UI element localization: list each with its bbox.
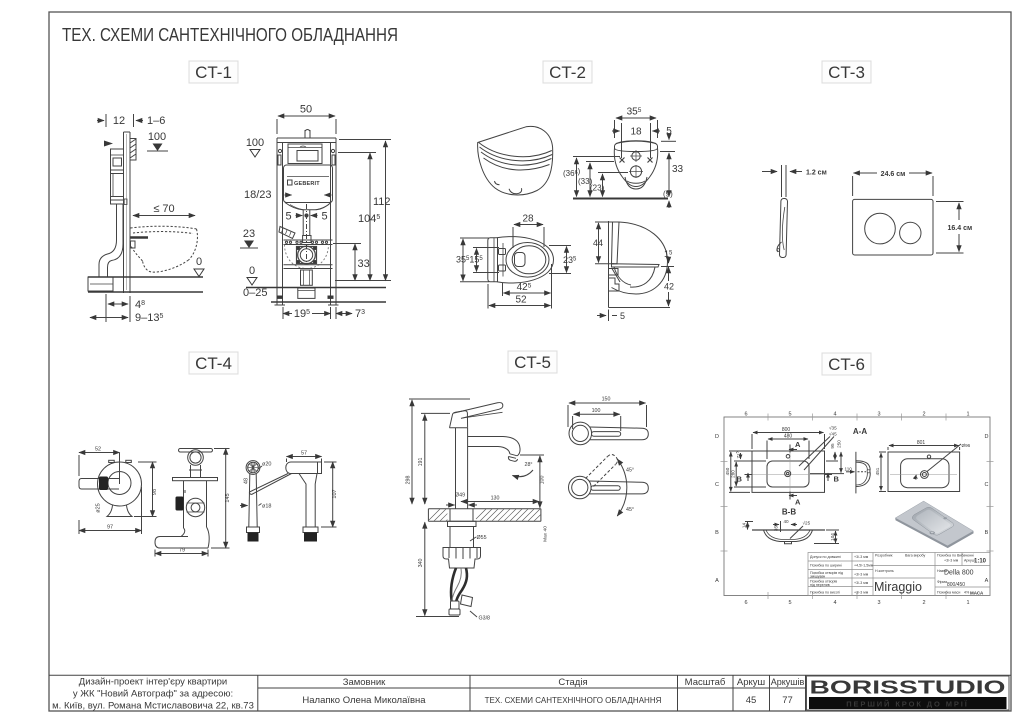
svg-text:(23): (23) — [590, 184, 605, 193]
svg-text:1–6: 1–6 — [147, 115, 165, 127]
svg-text:√35: √35 — [829, 426, 837, 431]
svg-text:Ø96: Ø96 — [962, 443, 971, 448]
svg-text:CT-1: CT-1 — [195, 63, 232, 82]
svg-text:52: 52 — [95, 447, 101, 453]
svg-text:ТЕХ. СХЕМИ САНТЕХНІЧНОГО ОБЛАД: ТЕХ. СХЕМИ САНТЕХНІЧНОГО ОБЛАДНАННЯ — [62, 24, 398, 45]
svg-text:Масштаб: Масштаб — [685, 677, 726, 688]
svg-text:Аркуш: Аркуш — [737, 677, 765, 688]
svg-text:√25: √25 — [803, 521, 811, 526]
svg-text:1:10: 1:10 — [974, 559, 987, 565]
svg-text:4: 4 — [833, 412, 836, 418]
svg-text:CT-3: CT-3 — [828, 63, 865, 82]
svg-text:1: 1 — [966, 412, 969, 418]
svg-text:D: D — [985, 434, 989, 440]
svg-text:CT-2: CT-2 — [549, 63, 586, 82]
svg-text:52: 52 — [515, 295, 527, 306]
svg-text:450: 450 — [725, 467, 730, 475]
svg-text:+3/-3 мм: +3/-3 мм — [854, 581, 869, 585]
svg-text:112: 112 — [373, 196, 391, 208]
svg-text:BORISSTUDIO: BORISSTUDIO — [810, 678, 1006, 698]
svg-text:451: 451 — [875, 467, 880, 475]
svg-text:ø25: ø25 — [96, 503, 102, 512]
svg-text:Аркушів: Аркушів — [771, 677, 805, 687]
svg-text:145: 145 — [225, 493, 231, 502]
svg-text:Похибка по висоті: Похибка по висоті — [810, 591, 840, 595]
svg-text:298: 298 — [406, 476, 412, 485]
svg-text:A-A: A-A — [853, 427, 867, 436]
svg-text:6: 6 — [744, 412, 747, 418]
svg-text:(9): (9) — [663, 190, 673, 199]
svg-text:3: 3 — [877, 600, 880, 606]
svg-text:CT-6: CT-6 — [828, 355, 865, 374]
svg-text:Замовник: Замовник — [343, 677, 386, 688]
svg-text:97: 97 — [107, 525, 113, 531]
svg-text:5: 5 — [788, 412, 791, 418]
svg-text:2: 2 — [922, 600, 925, 606]
svg-text:ТЕХ. СХЕМИ САНТЕХНІЧНОГО ОБЛАД: ТЕХ. СХЕМИ САНТЕХНІЧНОГО ОБЛАДНАННЯ — [485, 696, 662, 705]
svg-text:√45: √45 — [829, 432, 837, 437]
svg-text:9–135: 9–135 — [135, 312, 163, 324]
svg-text:+3/-3 мм: +3/-3 мм — [854, 573, 869, 577]
svg-text:B-B: B-B — [782, 508, 796, 517]
svg-text:57: 57 — [301, 451, 307, 457]
svg-text:800/450: 800/450 — [947, 582, 965, 588]
svg-text:98: 98 — [152, 489, 158, 495]
svg-text:Дизайн-проект інтер'єру кварти: Дизайн-проект інтер'єру квартири — [79, 677, 227, 688]
svg-text:355155: 355155 — [456, 255, 483, 265]
svg-text:ø20: ø20 — [262, 462, 271, 468]
svg-text:100: 100 — [540, 476, 546, 485]
svg-text:≤ 70: ≤ 70 — [153, 203, 174, 215]
svg-text:м. Київ, вул. Романа Мстиславо: м. Київ, вул. Романа Мстиславовича 22, к… — [52, 701, 254, 712]
svg-text:B: B — [715, 530, 719, 536]
svg-text:18/23: 18/23 — [244, 189, 272, 201]
svg-text:23: 23 — [243, 228, 255, 240]
svg-text:6: 6 — [744, 600, 747, 606]
svg-text:пiд перелив: пiд перелив — [810, 583, 830, 587]
svg-text:CT-4: CT-4 — [195, 354, 232, 373]
svg-text:191: 191 — [418, 458, 424, 467]
svg-text:Ø49: Ø49 — [455, 493, 465, 499]
svg-text:Похибка маси: Похибка маси — [937, 591, 960, 595]
svg-text:у ЖК "Новий Автограф" за адрес: у ЖК "Новий Автограф" за адресою: — [73, 689, 233, 700]
svg-text:12: 12 — [113, 115, 125, 127]
svg-text:1: 1 — [966, 600, 969, 606]
svg-text:28°: 28° — [525, 462, 533, 468]
svg-text:МАСА: МАСА — [970, 591, 984, 596]
svg-text:A: A — [795, 440, 801, 449]
svg-text:+3/-3 мм: +3/-3 мм — [944, 559, 959, 563]
svg-text:5: 5 — [666, 126, 672, 137]
svg-text:змішувач: змішувач — [810, 575, 825, 579]
svg-text:Вага виробу: Вага виробу — [905, 554, 926, 558]
svg-text:104: 104 — [830, 533, 835, 541]
svg-text:44: 44 — [593, 238, 603, 248]
svg-text:C: C — [985, 482, 989, 488]
svg-text:Della 800: Della 800 — [944, 570, 974, 577]
svg-text:B: B — [985, 530, 989, 536]
svg-text:+3/-3 мм: +3/-3 мм — [854, 555, 869, 559]
svg-text:D: D — [715, 434, 719, 440]
svg-text:0–25: 0–25 — [243, 287, 267, 299]
svg-text:50: 50 — [300, 104, 312, 116]
svg-text:G3/8: G3/8 — [479, 616, 491, 622]
svg-text:18: 18 — [630, 127, 642, 138]
svg-text:+4,5/-1,5мм: +4,5/-1,5мм — [854, 564, 874, 568]
svg-text:14: 14 — [742, 523, 747, 529]
svg-text:Ø55: Ø55 — [477, 535, 487, 541]
svg-text:A: A — [795, 498, 801, 507]
svg-text:280: 280 — [731, 470, 736, 478]
svg-text:Похибка по Вибаченні: Похибка по Вибаченні — [937, 554, 974, 558]
svg-text:ПЕРШИЙ КРОК ДО МРІЇ: ПЕРШИЙ КРОК ДО МРІЇ — [846, 699, 969, 708]
svg-text:Налапко Олена Миколаївна: Налапко Олена Миколаївна — [302, 695, 426, 706]
svg-text:48: 48 — [244, 478, 250, 484]
svg-text:79: 79 — [179, 548, 185, 554]
svg-text:Допуск по довжині: Допуск по довжині — [810, 555, 841, 559]
svg-text:Miraggio: Miraggio — [874, 579, 922, 594]
svg-text:C: C — [715, 482, 719, 488]
svg-text:35: 35 — [774, 526, 779, 532]
svg-text:28: 28 — [522, 214, 534, 225]
svg-text:33: 33 — [358, 258, 370, 270]
svg-text:107: 107 — [332, 489, 338, 498]
svg-text:0: 0 — [249, 265, 255, 277]
svg-text:100: 100 — [592, 408, 601, 414]
svg-text:Стадія: Стадія — [558, 677, 587, 688]
svg-text:77: 77 — [782, 695, 793, 706]
svg-text:340: 340 — [418, 559, 424, 568]
svg-text:45°: 45° — [626, 507, 634, 513]
svg-text:A: A — [715, 578, 719, 584]
svg-text:95: 95 — [830, 443, 835, 449]
svg-text:150: 150 — [602, 397, 611, 403]
svg-text:Мах 40: Мах 40 — [543, 526, 549, 542]
svg-text:CT-5: CT-5 — [514, 353, 551, 372]
svg-text:Похибка по ширині: Похибка по ширині — [810, 564, 842, 568]
svg-text:B: B — [737, 475, 743, 484]
svg-text:1.2 см: 1.2 см — [806, 170, 827, 177]
svg-text:+3/-3 мм: +3/-3 мм — [854, 591, 869, 595]
svg-text:5: 5 — [285, 211, 291, 223]
svg-text:Розробник: Розробник — [875, 554, 893, 558]
svg-text:45°: 45° — [626, 468, 634, 474]
svg-text:130: 130 — [491, 496, 500, 502]
svg-text:40: 40 — [783, 519, 789, 524]
svg-text:42: 42 — [664, 282, 674, 292]
svg-text:5: 5 — [321, 211, 327, 223]
svg-text:800: 800 — [782, 427, 791, 433]
svg-text:A: A — [985, 578, 989, 584]
svg-text:801: 801 — [917, 440, 926, 446]
svg-text:16.4 см: 16.4 см — [948, 225, 973, 232]
svg-text:ø18: ø18 — [262, 504, 271, 510]
svg-text:0: 0 — [196, 256, 202, 268]
svg-text:110: 110 — [845, 466, 853, 471]
svg-text:5: 5 — [620, 311, 625, 321]
svg-text:45: 45 — [746, 695, 757, 706]
svg-text:480: 480 — [784, 433, 793, 439]
svg-text:33: 33 — [672, 164, 684, 175]
svg-text:4: 4 — [833, 600, 836, 606]
svg-text:Н.контроль: Н.контроль — [875, 569, 894, 573]
svg-text:24.6 см: 24.6 см — [881, 171, 906, 178]
svg-text:250: 250 — [837, 440, 842, 448]
svg-text:100: 100 — [148, 131, 166, 143]
svg-text:B: B — [834, 475, 840, 484]
svg-text:2: 2 — [922, 412, 925, 418]
svg-text:GEBERIT: GEBERIT — [294, 181, 320, 187]
svg-text:3: 3 — [877, 412, 880, 418]
svg-text:Фірма: Фірма — [937, 580, 947, 584]
svg-text:5: 5 — [788, 600, 791, 606]
svg-text:100: 100 — [246, 137, 264, 149]
